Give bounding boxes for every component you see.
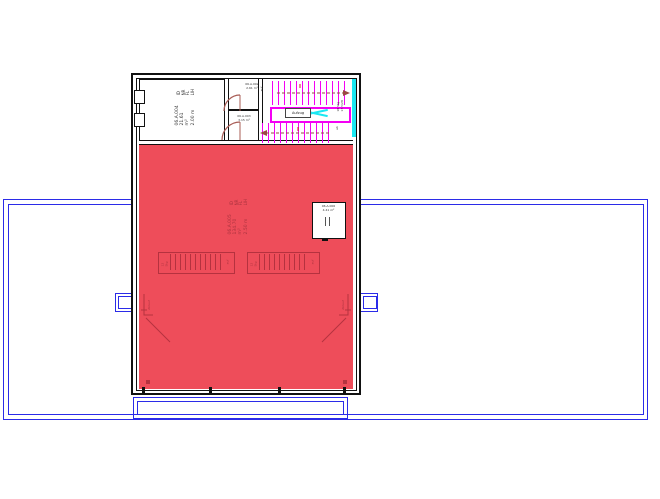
skylight-right-start: 12 Stg [249, 253, 258, 271]
nw-room-stamp-labels-text: ID NR FL LIH [177, 89, 195, 95]
skylight-right-end-text: auf [310, 260, 314, 265]
skylight-right: 12 Stg auf [247, 252, 320, 274]
nw-room-stamp-values: 06.A.004 21.61 m² 2.00 m [176, 100, 194, 130]
skylight-left: 12 Stg auf [158, 252, 235, 274]
hall-stamp-labels-text: ID NR FL LIH [230, 199, 248, 205]
stair-note-southeast: ab [332, 122, 341, 134]
corner-drain-left-text: Ablauf [147, 300, 151, 310]
stair-note-southeast-text: ab [335, 126, 339, 130]
room-east-tick [322, 238, 328, 241]
nw-room-stamp-values-text: 06.A.004 21.61 m² 2.00 m [175, 105, 196, 125]
skylight-left-treads [170, 254, 222, 270]
closet-bottom-label: 06.A.003 3.15 m² [230, 115, 258, 123]
skylight-left-start-text: 12 Stg [161, 258, 169, 267]
wall-closet-divider [228, 109, 259, 111]
wall-notch-lower [134, 113, 145, 127]
hall-stamp-values-text: 06.A.005 134.70 m² 2.50 m [228, 214, 249, 234]
corner-drain-left: Ablauf [145, 296, 153, 314]
hall-stamp-labels: ID NR FL LIH [229, 194, 249, 210]
bottom-wall-tick-4 [343, 387, 346, 393]
nw-room-stamp-labels: ID NR FL LIH [176, 84, 196, 100]
hall-corner-mark-right [343, 380, 347, 384]
closet-top-label: 06.A.002 2.61 m² [238, 83, 266, 91]
skylight-left-start: 12 Stg [160, 253, 169, 271]
stair-note-east-text: 18 Stg 17.5/28 [337, 100, 345, 112]
skylight-left-end-text: auf [225, 260, 229, 265]
stair-lower-flight [262, 123, 332, 143]
east-wall-cyan-strip [352, 79, 356, 137]
skylight-left-end: auf [223, 253, 232, 271]
room-east-mark-1 [325, 217, 326, 226]
hall-corner-mark-left [146, 380, 150, 384]
skylight-right-treads [259, 254, 307, 270]
wall-notch-upper [134, 90, 145, 104]
skylight-right-start-text: 12 Stg [250, 258, 258, 267]
skylight-right-end: auf [308, 253, 317, 271]
room-east: 06.A.006 4.41 m² [312, 202, 346, 239]
east-tab-inner [363, 296, 377, 309]
corner-drain-right: Ablauf [339, 296, 347, 314]
stair-landing-label: Aufzug [285, 108, 311, 118]
corner-drain-right-text: Ablauf [341, 300, 345, 310]
floorplan-canvas: Aufzug auf 18 Stg 17.5/28 ab ID NR FL LI… [0, 0, 660, 499]
bottom-wall-tick-2 [209, 387, 212, 393]
room-east-mark-2 [329, 217, 330, 226]
south-terrace-inner [137, 401, 344, 415]
bottom-wall-tick-1 [142, 387, 145, 393]
bottom-wall-tick-3 [278, 387, 281, 393]
stair-note-east: 18 Stg 17.5/28 [334, 88, 348, 124]
hall-stamp-values: 06.A.005 134.70 m² 2.50 m [229, 210, 247, 238]
west-tab-inner [118, 296, 132, 309]
room-east-label: 06.A.006 4.41 m² [314, 205, 343, 213]
